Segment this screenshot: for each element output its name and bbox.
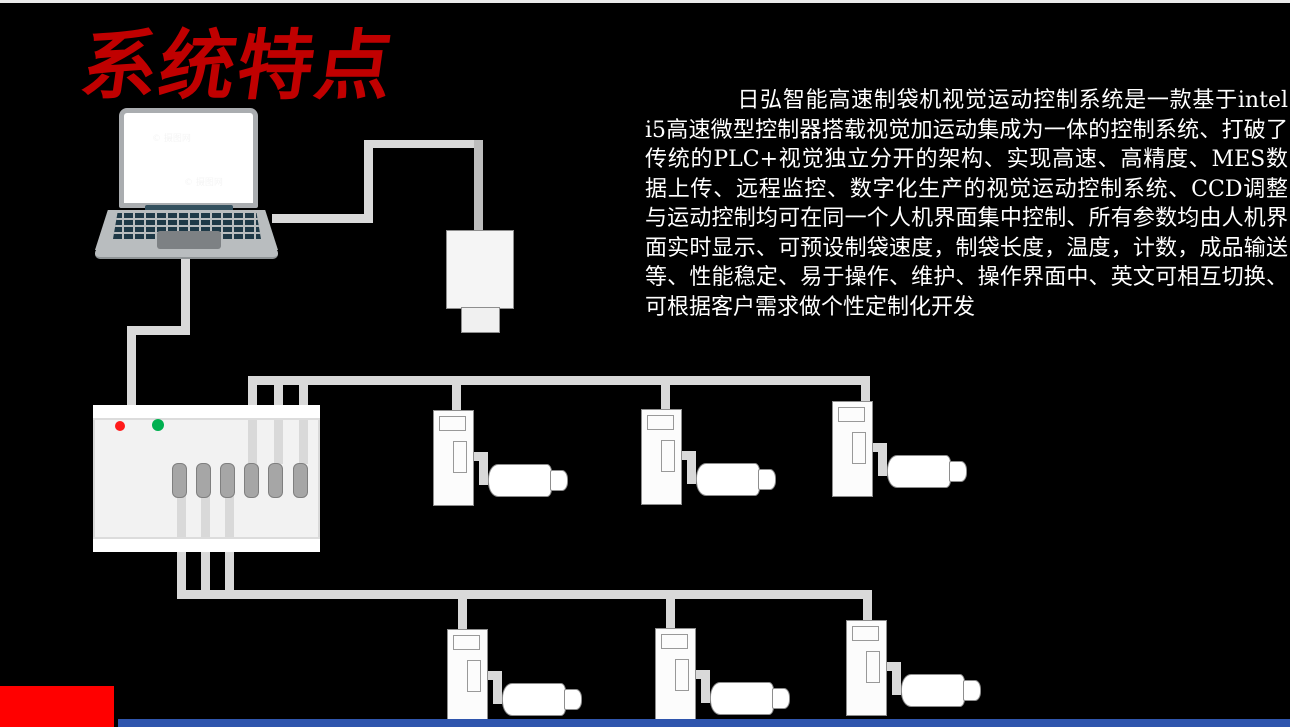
motor-shaft bbox=[550, 470, 568, 491]
cable-bot-drop-3 bbox=[863, 597, 872, 622]
motor-body bbox=[488, 464, 552, 497]
motor-body bbox=[502, 683, 566, 716]
drive-connector bbox=[467, 660, 481, 692]
motor-shaft bbox=[772, 688, 790, 709]
motor-shaft bbox=[949, 461, 967, 482]
drive-label-plate bbox=[453, 635, 480, 650]
servo-drive-unit bbox=[832, 401, 967, 497]
cable-ctrl-top-2 bbox=[274, 376, 283, 464]
motor-body bbox=[901, 674, 965, 707]
laptop-base-edge bbox=[95, 248, 278, 259]
drive-connector bbox=[453, 441, 467, 473]
cable-laptop-left bbox=[127, 326, 190, 335]
cable-laptop-down bbox=[181, 252, 190, 334]
cable-to-camera-v1 bbox=[364, 140, 373, 223]
servo-drive-unit bbox=[655, 628, 790, 724]
slide-top-edge bbox=[0, 0, 1290, 3]
bottom-blue-bar bbox=[118, 719, 1290, 727]
industrial-camera bbox=[446, 230, 514, 309]
status-led-green bbox=[152, 419, 164, 431]
drive-connector bbox=[852, 432, 866, 464]
drive-connector bbox=[675, 659, 689, 691]
motor-cable bbox=[701, 670, 710, 703]
motor-cable bbox=[892, 662, 901, 695]
body-paragraph: 日弘智能高速制袋机视觉运动控制系统是一款基于intel i5高速微型控制器搭载视… bbox=[645, 86, 1288, 322]
drive-label-plate bbox=[838, 407, 865, 422]
cable-top-drop-1 bbox=[452, 383, 461, 413]
cable-bot-drop-1 bbox=[458, 597, 467, 631]
controller-slot bbox=[220, 463, 235, 498]
cable-to-camera-h2 bbox=[364, 140, 483, 148]
drive-connector bbox=[661, 440, 675, 472]
servo-drive bbox=[641, 409, 682, 505]
camera-lens bbox=[461, 307, 500, 333]
motor-cable bbox=[493, 671, 502, 704]
cable-ctrl-top-1 bbox=[248, 376, 257, 464]
controller-slot bbox=[196, 463, 211, 498]
servo-drive-unit bbox=[447, 629, 582, 725]
watermark-text: © 摄图网 bbox=[184, 175, 223, 188]
laptop-trackpad bbox=[157, 231, 221, 249]
cable-to-camera-h1 bbox=[272, 214, 373, 223]
servo-drive bbox=[846, 620, 887, 716]
servo-drive-unit bbox=[641, 409, 776, 505]
controller-slot bbox=[244, 463, 259, 498]
drive-label-plate bbox=[647, 415, 674, 430]
laptop-screen: © 摄图网 © 摄图网 bbox=[119, 108, 258, 208]
motor-cable bbox=[878, 443, 887, 476]
motor-cable bbox=[687, 451, 696, 484]
servo-drive bbox=[433, 410, 474, 506]
motor-body bbox=[887, 455, 951, 488]
red-accent-block bbox=[0, 686, 114, 727]
controller-slot bbox=[268, 463, 283, 498]
cable-bottom-bus bbox=[177, 590, 872, 599]
power-led-red bbox=[115, 421, 125, 431]
drive-label-plate bbox=[439, 416, 466, 431]
cable-top-drop-3 bbox=[861, 383, 870, 403]
controller-bottom-strip bbox=[93, 537, 320, 552]
servo-drive-unit bbox=[846, 620, 981, 716]
cable-bot-drop-2 bbox=[666, 597, 675, 630]
watermark-text: © 摄图网 bbox=[152, 131, 191, 144]
cable-top-drop-2 bbox=[661, 383, 670, 411]
motor-shaft bbox=[564, 689, 582, 710]
servo-drive-unit bbox=[433, 410, 568, 506]
servo-drive bbox=[447, 629, 488, 725]
cable-ctrl-top-3 bbox=[299, 376, 308, 464]
slide-title: 系统特点 bbox=[75, 4, 402, 114]
motor-body bbox=[696, 463, 760, 496]
drive-label-plate bbox=[661, 634, 688, 649]
drive-connector bbox=[866, 651, 880, 683]
cable-top-bus bbox=[248, 376, 870, 385]
motor-shaft bbox=[758, 469, 776, 490]
presentation-slide: 系统特点 日弘智能高速制袋机视觉运动控制系统是一款基于intel i5高速微型控… bbox=[0, 0, 1290, 727]
motor-cable bbox=[479, 452, 488, 485]
drive-label-plate bbox=[852, 626, 879, 641]
controller-top-strip bbox=[93, 405, 320, 420]
motor-body bbox=[710, 682, 774, 715]
motor-shaft bbox=[963, 680, 981, 701]
servo-drive bbox=[655, 628, 696, 724]
servo-drive bbox=[832, 401, 873, 497]
controller-slot bbox=[293, 463, 308, 498]
controller-slot bbox=[172, 463, 187, 498]
